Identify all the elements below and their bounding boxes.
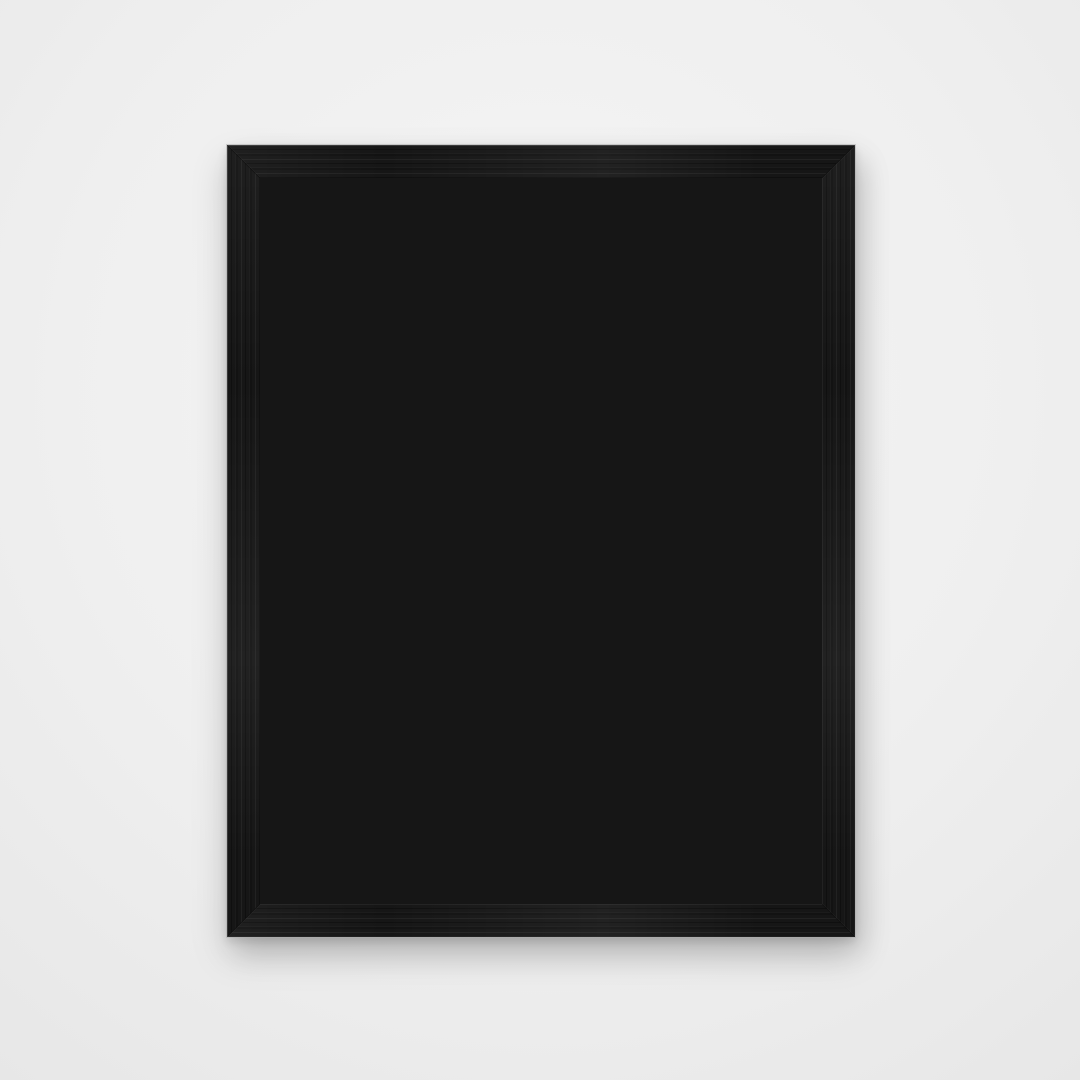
frame-band-left — [227, 145, 260, 937]
product-photo-stage — [0, 0, 1080, 1080]
frame-band-bottom — [227, 904, 855, 937]
frame-edge-highlight — [227, 145, 855, 937]
frame-band-top — [227, 145, 855, 178]
frame-moulding — [227, 145, 855, 937]
frame-band-right — [822, 145, 855, 937]
